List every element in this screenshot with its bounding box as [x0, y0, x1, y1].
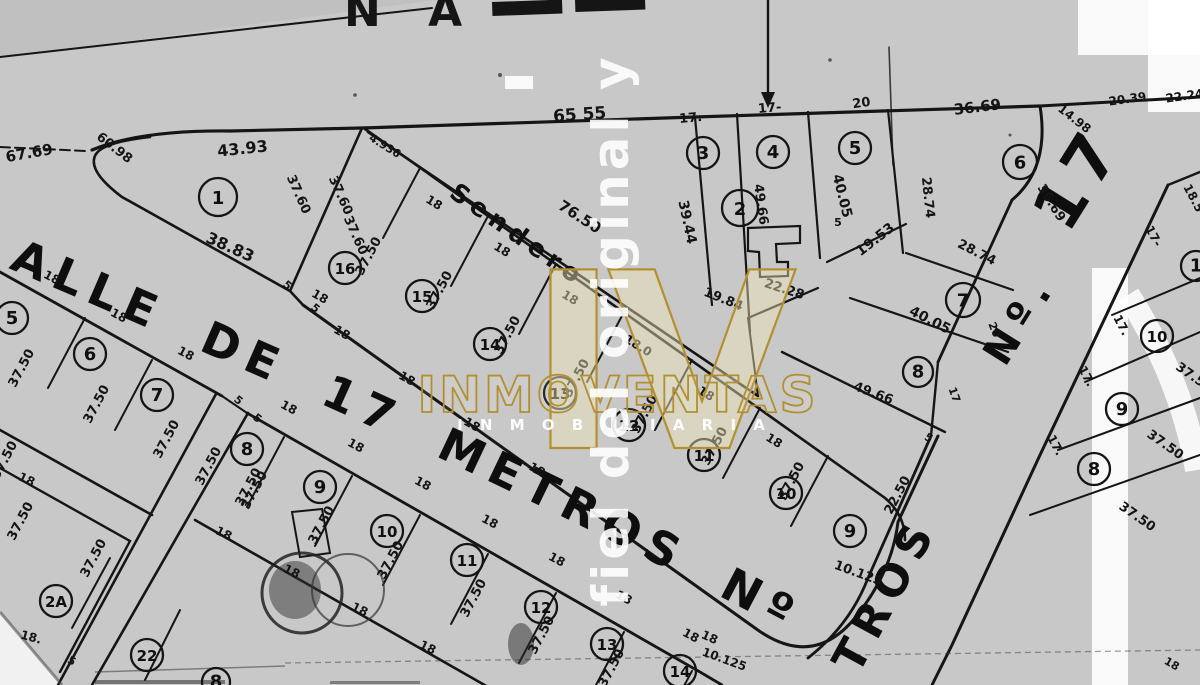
lot-number: 9 [1116, 399, 1129, 420]
lot-number: 10 [1147, 328, 1168, 346]
lot-number: 1 [1190, 256, 1200, 277]
notary-side-text: fiel del original y [582, 53, 640, 606]
measurement-label: 17. [679, 110, 703, 127]
lot-number: 6 [1014, 152, 1027, 173]
lot-number: 8 [210, 671, 223, 685]
lot-number: 14 [670, 663, 691, 681]
lot-number: 5 [849, 138, 862, 159]
lot-number: 12 [531, 599, 552, 617]
lot-number: 22 [137, 647, 158, 665]
lot-number: 6 [84, 344, 97, 365]
lot-number: 8 [1088, 459, 1101, 480]
lot-number: 11 [457, 552, 478, 570]
lot-number: 2A [45, 593, 67, 611]
cut-letter-blob [492, 0, 562, 16]
lot-number: 4 [767, 142, 780, 163]
lot-number: 1 [212, 188, 225, 209]
lot-number: 7 [151, 385, 164, 406]
lot-number: 8 [912, 362, 925, 383]
lot-number: 3 [697, 143, 710, 164]
top-edge-cut-text: N A [344, 0, 478, 37]
map-canvas: ALLE DE 17 METROS Nº 2 TROS Nº. 17 Sende… [0, 0, 1200, 685]
measurement-label: 5 [834, 216, 842, 229]
brand-monogram: IV [528, 221, 796, 506]
lot-number: 16 [335, 260, 356, 278]
scanned-survey-map: ALLE DE 17 METROS Nº 2 TROS Nº. 17 Sende… [0, 0, 1200, 685]
lot-number: 5 [6, 308, 19, 329]
lot-number: 8 [241, 439, 254, 460]
lot-number: 7 [957, 290, 970, 311]
measurement-label: 20 [852, 95, 872, 112]
lot-number: 10 [377, 523, 398, 541]
lot-number: 9 [844, 521, 857, 542]
lot-number: 9 [314, 477, 327, 498]
measurement-label: 17- [757, 100, 782, 117]
lot-number: 2 [734, 199, 747, 220]
